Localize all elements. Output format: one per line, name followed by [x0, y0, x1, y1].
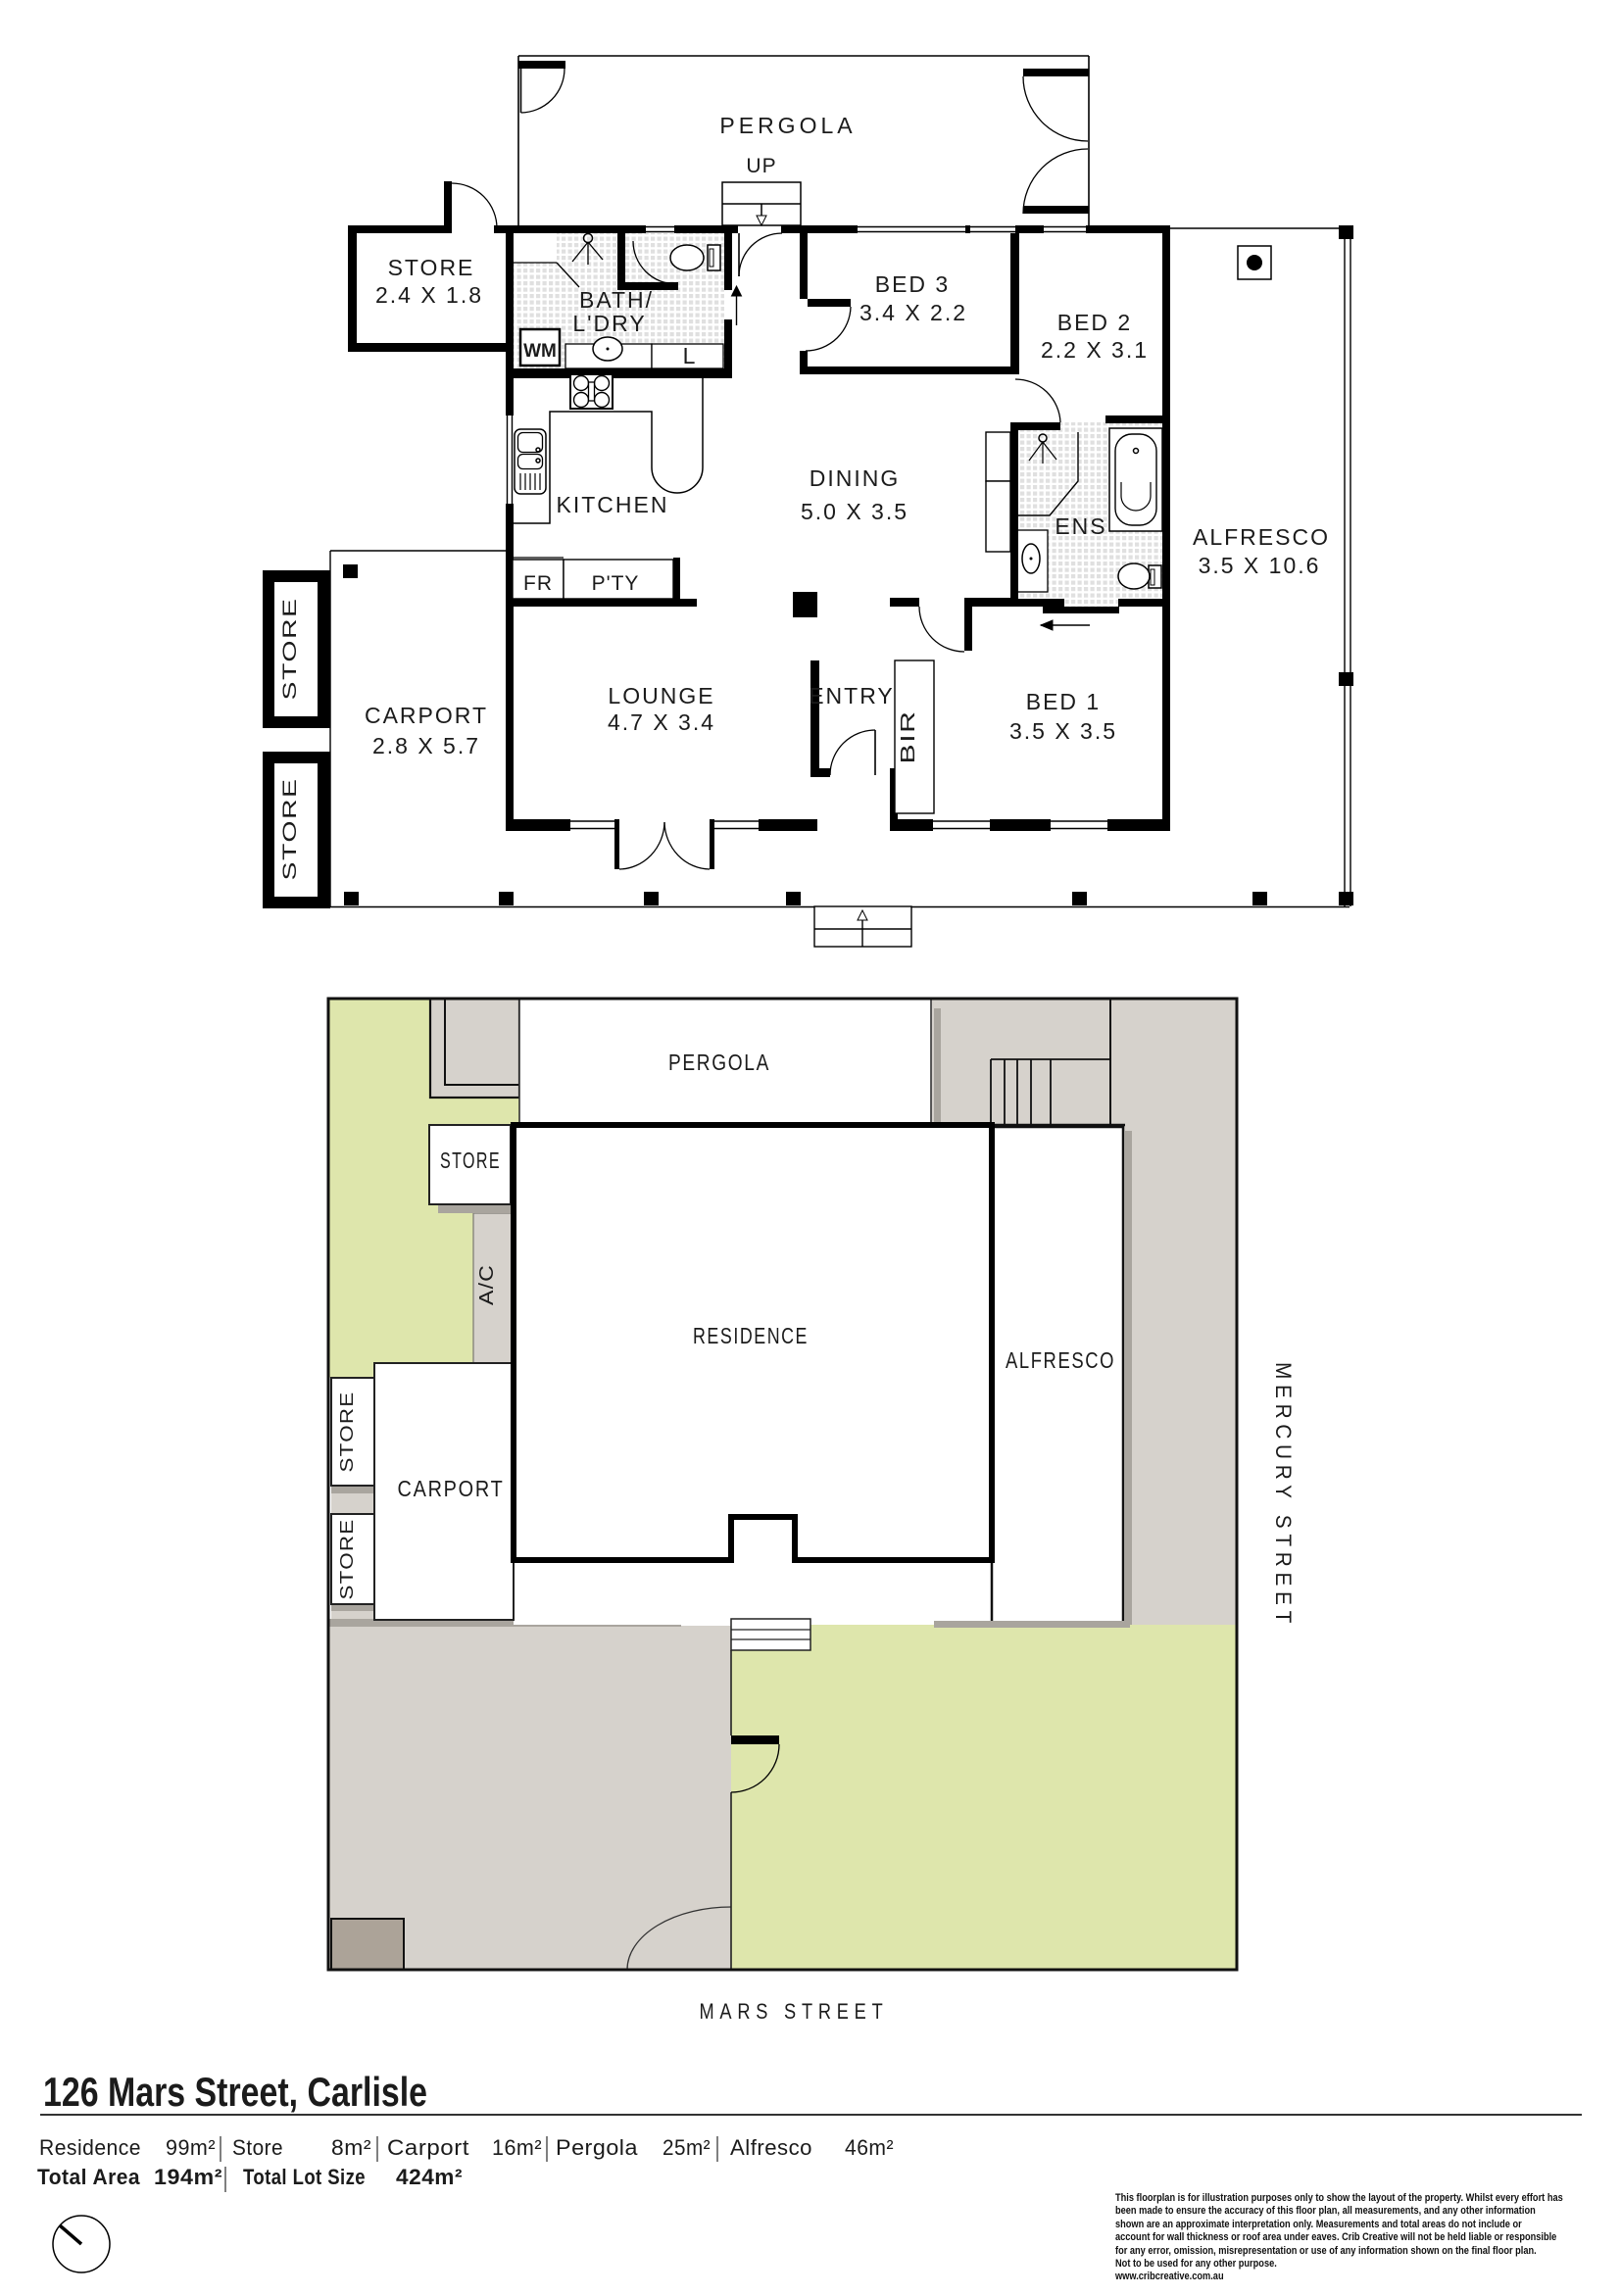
svg-text:ENS: ENS — [1055, 513, 1106, 539]
svg-text:UP: UP — [746, 155, 776, 177]
svg-text:MARS STREET: MARS STREET — [700, 1999, 889, 2024]
svg-text:ENTRY: ENTRY — [809, 683, 895, 708]
svg-text:Residence: Residence — [39, 2135, 141, 2160]
svg-text:25m²: 25m² — [663, 2135, 711, 2160]
svg-text:P'TY: P'TY — [592, 572, 640, 595]
svg-text:2.2 X 3.1: 2.2 X 3.1 — [1041, 337, 1149, 363]
svg-text:3.4 X 2.2: 3.4 X 2.2 — [859, 300, 967, 325]
svg-text:Total Area: Total Area — [37, 2165, 140, 2189]
svg-text:STORE: STORE — [280, 598, 301, 701]
svg-text:CARPORT: CARPORT — [365, 703, 488, 728]
svg-text:2.8 X 5.7: 2.8 X 5.7 — [372, 733, 480, 758]
svg-text:STORE: STORE — [388, 255, 475, 280]
svg-text:MERCURY STREET: MERCURY STREET — [1271, 1362, 1296, 1629]
svg-text:PERGOLA: PERGOLA — [719, 113, 856, 138]
svg-text:3.5 X 3.5: 3.5 X 3.5 — [1009, 718, 1117, 744]
svg-text:ALFRESCO: ALFRESCO — [1006, 1347, 1115, 1373]
svg-text:RESIDENCE: RESIDENCE — [693, 1323, 809, 1348]
svg-text:L: L — [683, 343, 696, 368]
svg-text:Total Lot Size: Total Lot Size — [243, 2165, 366, 2189]
svg-text:STORE: STORE — [337, 1392, 357, 1473]
svg-text:3.5 X 10.6: 3.5 X 10.6 — [1199, 553, 1321, 578]
svg-text:Alfresco: Alfresco — [730, 2135, 812, 2160]
svg-text:16m²: 16m² — [492, 2135, 542, 2160]
svg-text:FR: FR — [523, 572, 553, 595]
svg-text:PERGOLA: PERGOLA — [668, 1050, 770, 1075]
svg-text:WM: WM — [523, 341, 557, 362]
svg-text:BED 1: BED 1 — [1026, 689, 1101, 714]
svg-text:BATH/: BATH/ — [579, 287, 654, 313]
svg-text:5.0 X 3.5: 5.0 X 3.5 — [801, 499, 908, 524]
svg-text:L'DRY: L'DRY — [572, 311, 646, 336]
svg-text:Store: Store — [232, 2135, 283, 2160]
svg-text:2.4 X 1.8: 2.4 X 1.8 — [375, 282, 483, 308]
svg-text:KITCHEN: KITCHEN — [557, 492, 669, 517]
svg-text:STORE: STORE — [337, 1519, 357, 1600]
svg-text:46m²: 46m² — [845, 2135, 894, 2160]
svg-text:8m²: 8m² — [331, 2135, 371, 2160]
svg-text:126 Mars Street, Carlisle: 126 Mars Street, Carlisle — [43, 2069, 427, 2115]
svg-text:BED 2: BED 2 — [1057, 310, 1132, 335]
svg-text:99m²: 99m² — [166, 2135, 216, 2160]
svg-text:194m²: 194m² — [154, 2165, 222, 2189]
svg-text:424m²: 424m² — [396, 2165, 463, 2189]
svg-text:ALFRESCO: ALFRESCO — [1193, 524, 1330, 550]
svg-text:STORE: STORE — [280, 778, 301, 881]
svg-text:CARPORT: CARPORT — [398, 1476, 505, 1501]
svg-text:BIR: BIR — [898, 710, 919, 764]
svg-text:LOUNGE: LOUNGE — [608, 683, 714, 708]
svg-text:STORE: STORE — [440, 1148, 501, 1173]
svg-text:4.7 X 3.4: 4.7 X 3.4 — [608, 709, 715, 735]
svg-text:DINING: DINING — [810, 465, 901, 491]
svg-text:A/C: A/C — [476, 1264, 498, 1305]
svg-text:Pergola: Pergola — [556, 2135, 638, 2160]
svg-text:BED 3: BED 3 — [875, 271, 950, 297]
svg-text:Carport: Carport — [387, 2135, 469, 2160]
